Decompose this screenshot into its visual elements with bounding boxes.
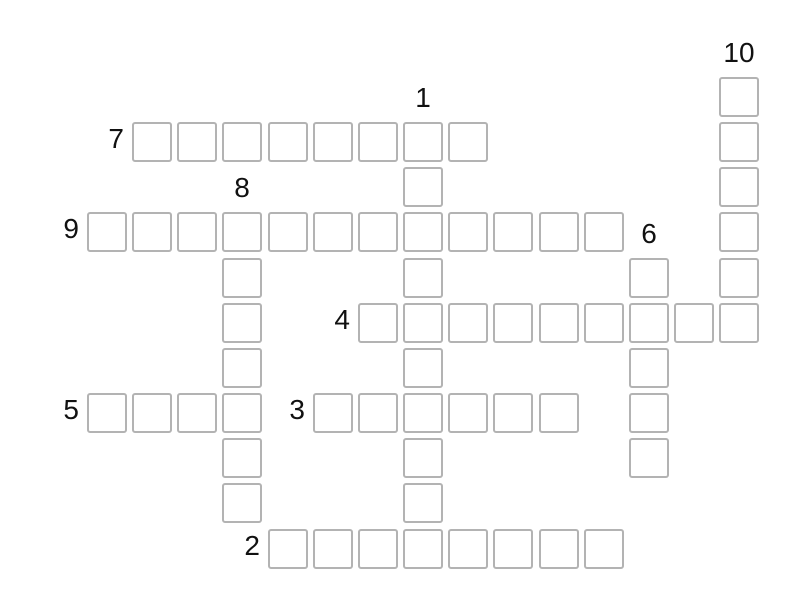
crossword-cell[interactable] xyxy=(222,483,262,523)
crossword-cell[interactable] xyxy=(403,212,443,252)
crossword-cell[interactable] xyxy=(403,438,443,478)
crossword-cell[interactable] xyxy=(132,122,172,162)
crossword-cell[interactable] xyxy=(448,122,488,162)
crossword-cell[interactable] xyxy=(584,212,624,252)
crossword-cell[interactable] xyxy=(222,303,262,343)
crossword-grid: 12345678910 xyxy=(0,0,800,600)
crossword-cell[interactable] xyxy=(87,212,127,252)
crossword-cell[interactable] xyxy=(539,529,579,569)
crossword-cell[interactable] xyxy=(87,393,127,433)
crossword-cell[interactable] xyxy=(448,212,488,252)
clue-number-label: 6 xyxy=(641,220,657,248)
clue-number-label: 1 xyxy=(415,84,431,112)
clue-number-label: 8 xyxy=(234,174,250,202)
crossword-cell[interactable] xyxy=(539,303,579,343)
crossword-cell[interactable] xyxy=(313,529,353,569)
crossword-cell[interactable] xyxy=(403,303,443,343)
crossword-cell[interactable] xyxy=(539,393,579,433)
crossword-cell[interactable] xyxy=(403,393,443,433)
crossword-cell[interactable] xyxy=(674,303,714,343)
crossword-cell[interactable] xyxy=(493,393,533,433)
crossword-cell[interactable] xyxy=(222,393,262,433)
crossword-cell[interactable] xyxy=(177,212,217,252)
crossword-cell[interactable] xyxy=(493,212,533,252)
crossword-cell[interactable] xyxy=(222,212,262,252)
crossword-cell[interactable] xyxy=(629,393,669,433)
crossword-cell[interactable] xyxy=(493,303,533,343)
crossword-cell[interactable] xyxy=(358,122,398,162)
crossword-cell[interactable] xyxy=(403,258,443,298)
clue-number-label: 5 xyxy=(63,396,79,424)
clue-number-label: 4 xyxy=(334,306,350,334)
crossword-cell[interactable] xyxy=(222,348,262,388)
crossword-cell[interactable] xyxy=(222,258,262,298)
crossword-cell[interactable] xyxy=(132,393,172,433)
crossword-cell[interactable] xyxy=(493,529,533,569)
crossword-cell[interactable] xyxy=(629,438,669,478)
crossword-cell[interactable] xyxy=(313,212,353,252)
crossword-cell[interactable] xyxy=(177,393,217,433)
crossword-cell[interactable] xyxy=(177,122,217,162)
clue-number-label: 2 xyxy=(244,532,260,560)
crossword-cell[interactable] xyxy=(222,122,262,162)
crossword-cell[interactable] xyxy=(448,529,488,569)
crossword-cell[interactable] xyxy=(719,77,759,117)
crossword-cell[interactable] xyxy=(358,212,398,252)
clue-number-label: 9 xyxy=(63,215,79,243)
crossword-cell[interactable] xyxy=(539,212,579,252)
crossword-cell[interactable] xyxy=(448,303,488,343)
crossword-cell[interactable] xyxy=(584,303,624,343)
crossword-cell[interactable] xyxy=(629,258,669,298)
crossword-cell[interactable] xyxy=(403,348,443,388)
crossword-cell[interactable] xyxy=(268,212,308,252)
crossword-cell[interactable] xyxy=(629,348,669,388)
crossword-cell[interactable] xyxy=(132,212,172,252)
crossword-cell[interactable] xyxy=(403,529,443,569)
crossword-cell[interactable] xyxy=(403,483,443,523)
crossword-cell[interactable] xyxy=(584,529,624,569)
clue-number-label: 7 xyxy=(108,125,124,153)
crossword-cell[interactable] xyxy=(222,438,262,478)
crossword-cell[interactable] xyxy=(268,529,308,569)
crossword-cell[interactable] xyxy=(313,122,353,162)
crossword-cell[interactable] xyxy=(358,529,398,569)
crossword-cell[interactable] xyxy=(719,212,759,252)
page: { "page": { "background": "#ffffff" }, "… xyxy=(0,0,800,600)
crossword-cell[interactable] xyxy=(448,393,488,433)
crossword-cell[interactable] xyxy=(719,122,759,162)
crossword-cell[interactable] xyxy=(719,303,759,343)
crossword-cell[interactable] xyxy=(358,303,398,343)
crossword-cell[interactable] xyxy=(403,167,443,207)
crossword-cell[interactable] xyxy=(719,167,759,207)
crossword-cell[interactable] xyxy=(313,393,353,433)
clue-number-label: 3 xyxy=(289,396,305,424)
clue-number-label: 10 xyxy=(723,39,754,67)
crossword-cell[interactable] xyxy=(268,122,308,162)
crossword-cell[interactable] xyxy=(719,258,759,298)
crossword-cell[interactable] xyxy=(629,303,669,343)
crossword-cell[interactable] xyxy=(403,122,443,162)
crossword-cell[interactable] xyxy=(358,393,398,433)
